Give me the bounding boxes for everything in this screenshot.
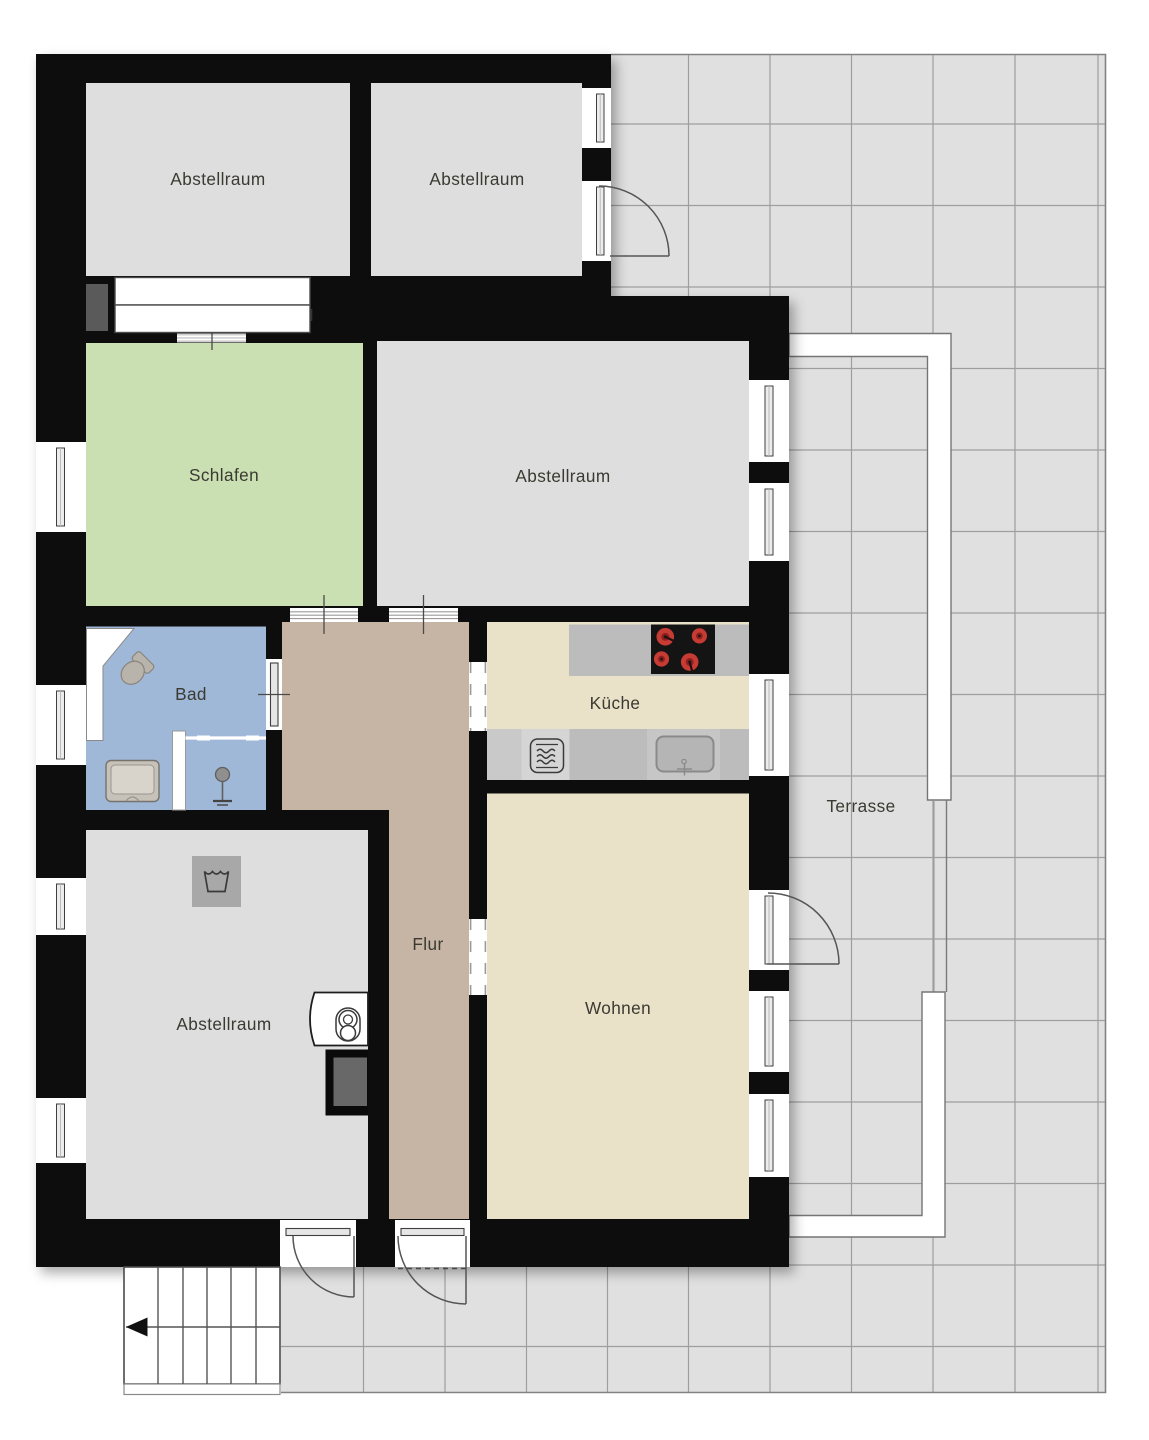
svg-text:Bad: Bad [175, 684, 207, 704]
svg-text:Abstellraum: Abstellraum [170, 169, 265, 189]
svg-text:Wohnen: Wohnen [585, 998, 651, 1018]
svg-text:Abstellraum: Abstellraum [429, 169, 524, 189]
svg-text:Abstellraum: Abstellraum [176, 1014, 271, 1034]
svg-text:Abstellraum: Abstellraum [515, 466, 610, 486]
svg-text:Terrasse: Terrasse [826, 796, 895, 816]
svg-text:Flur: Flur [412, 934, 443, 954]
svg-text:Schlafen: Schlafen [189, 465, 259, 485]
svg-text:Küche: Küche [590, 693, 641, 713]
